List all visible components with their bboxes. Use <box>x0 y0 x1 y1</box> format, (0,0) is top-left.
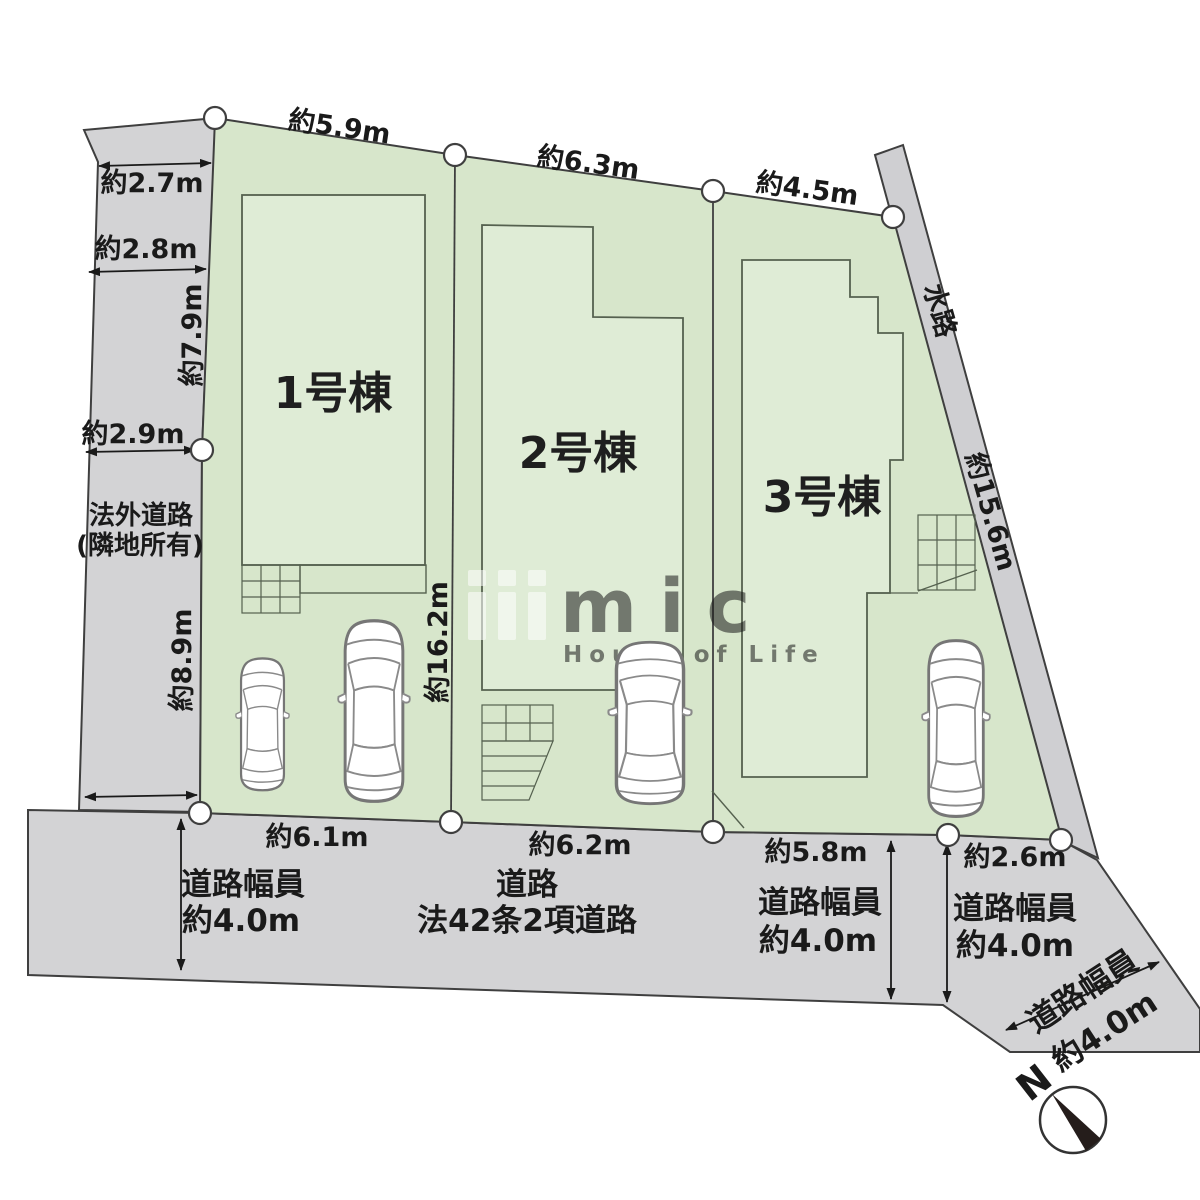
road-main-type: 法42条2項道路 <box>417 903 638 939</box>
dim-south-5-8: 約5.8m <box>765 836 868 868</box>
dim-south-2-6: 約2.6m <box>964 841 1067 873</box>
dim-west-2-9: 約2.9m <box>82 418 185 450</box>
watermark-tagline: House of Life <box>563 642 825 668</box>
dim-west-2-8: 約2.8m <box>95 233 198 265</box>
west-road-name-line2: (隣地所有) <box>76 531 204 561</box>
car-lot2 <box>608 642 691 803</box>
building-2-label: 2号棟 <box>519 428 639 479</box>
compass: N <box>1008 1056 1106 1153</box>
car-lot3 <box>922 641 990 817</box>
dim-west-2-7: 約2.7m <box>101 167 204 199</box>
road-main-name: 道路 <box>496 867 559 903</box>
road-width-mid-value: 約4.0m <box>759 923 877 959</box>
road-width-west-label: 道路幅員 <box>181 867 305 903</box>
car-lot1-large <box>338 621 410 802</box>
road-width-mid-label: 道路幅員 <box>758 885 882 921</box>
dim-south-6-2: 約6.2m <box>529 829 632 861</box>
dim-depth-16-2: 約16.2m <box>422 581 454 703</box>
site-plan-canvas: mic House of Life 1号棟 2号棟 3号棟 約5.9m 約6.3… <box>0 0 1200 1200</box>
road-width-east-value: 約4.0m <box>956 928 1074 964</box>
dim-west-7-9: 約7.9m <box>176 284 208 387</box>
watermark-logo-text: mic <box>560 564 772 650</box>
site-plan: mic House of Life 1号棟 2号棟 3号棟 約5.9m 約6.3… <box>0 0 1200 1200</box>
building-3-label: 3号棟 <box>763 472 883 523</box>
dim-west-8-9: 約8.9m <box>166 609 198 712</box>
road-width-east-label: 道路幅員 <box>953 891 1077 927</box>
car-lot1-small <box>236 658 289 790</box>
dim-south-6-1: 約6.1m <box>266 821 369 853</box>
road-width-west-value: 約4.0m <box>182 903 300 939</box>
west-road-name-line1: 法外道路 <box>89 500 194 531</box>
mic-logo-bars-icon <box>468 570 546 640</box>
building-1-label: 1号棟 <box>274 368 394 419</box>
